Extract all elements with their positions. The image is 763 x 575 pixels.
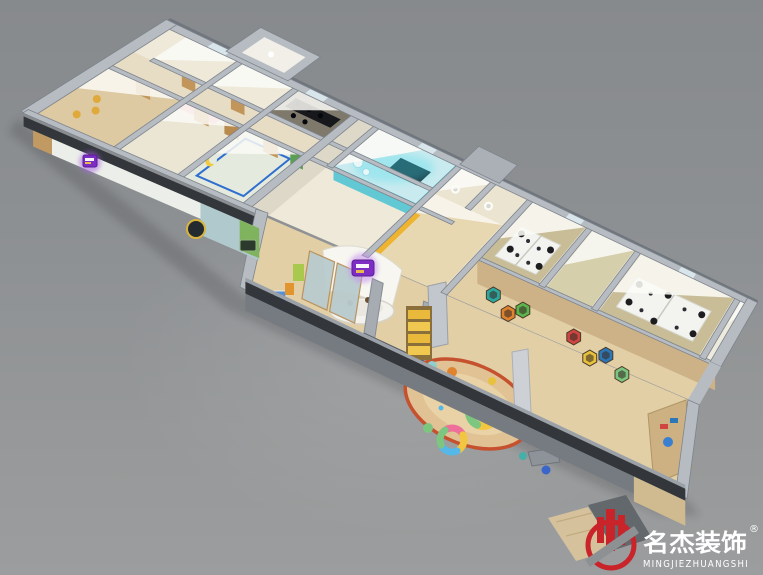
office-1-monitor xyxy=(526,261,530,265)
reception-logo-glyph xyxy=(356,264,369,268)
play-shelf-box xyxy=(408,322,430,331)
toy-cluster xyxy=(93,95,101,103)
staff-monitor xyxy=(302,119,307,124)
globe xyxy=(663,437,673,447)
registered-trademark-symbol: ® xyxy=(749,524,759,535)
office-1-monitor xyxy=(515,253,519,257)
entrance-poster-orange xyxy=(285,283,294,295)
office-1-chair xyxy=(547,247,554,254)
logo-bar xyxy=(597,517,604,543)
office-2-monitor xyxy=(639,308,643,312)
play-shelf-box xyxy=(408,310,430,319)
facade-logo-glyph xyxy=(85,162,91,164)
office-1-monitor xyxy=(526,239,530,243)
staff-monitor xyxy=(291,113,296,118)
office-1-monitor xyxy=(537,247,541,251)
office-2-chair xyxy=(626,299,633,306)
kids-chair-blue xyxy=(542,466,551,475)
play-stool xyxy=(488,377,496,385)
brand-name-chinese: 名杰装饰 xyxy=(643,529,747,557)
office-2-monitor xyxy=(675,326,679,330)
staff-monitor xyxy=(318,113,323,118)
rug-toy xyxy=(439,406,444,411)
office-1-chair xyxy=(536,263,543,270)
rainbow-seat xyxy=(442,447,457,452)
facade-logo-glyph xyxy=(85,158,94,161)
office-2-chair xyxy=(650,318,657,325)
shelf-book xyxy=(670,418,678,423)
entrance-panel-lime xyxy=(293,264,304,281)
scene-svg: 名杰装饰 ® MINGJIEZHUANGSHI xyxy=(0,0,763,575)
office-2-chair xyxy=(698,311,705,318)
facade-porthole-window xyxy=(187,220,205,238)
brand-name-english: MINGJIEZHUANGSHI xyxy=(643,559,749,570)
kids-chair-teal xyxy=(519,452,527,460)
play-stool xyxy=(423,423,433,433)
office-1-chair xyxy=(507,246,514,253)
office-2-monitor xyxy=(683,307,687,311)
office-2-chair xyxy=(690,330,697,337)
shelf-book xyxy=(660,424,668,429)
facade-blackboard xyxy=(240,240,256,251)
media-mirror xyxy=(363,169,370,176)
toilet-seat xyxy=(486,204,490,208)
toy-cluster xyxy=(73,110,81,118)
play-shelf-box xyxy=(408,334,430,343)
render-viewport: 名杰装饰 ® MINGJIEZHUANGSHI xyxy=(0,0,763,575)
reception-logo-glyph xyxy=(356,270,364,273)
annex-fixture xyxy=(268,51,274,57)
toy-cluster xyxy=(92,107,100,115)
building-cutaway xyxy=(8,18,758,525)
play-shelf-box xyxy=(408,346,430,355)
